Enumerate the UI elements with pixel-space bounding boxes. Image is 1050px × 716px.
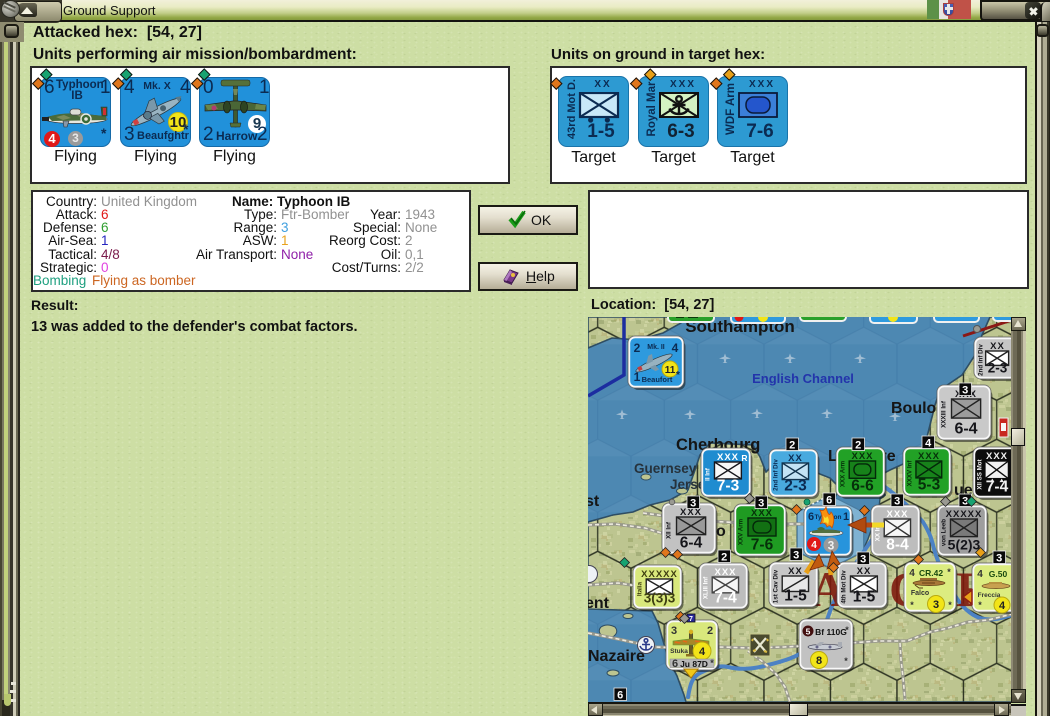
svg-text:6: 6	[672, 658, 678, 670]
svg-text:XII Inf: XII Inf	[666, 521, 673, 539]
svg-text:3: 3	[996, 552, 1002, 564]
svg-text:ent: ent	[588, 595, 610, 612]
svg-text:English Channel: English Channel	[752, 371, 854, 386]
svg-text:*: *	[947, 567, 951, 577]
svg-text:3: 3	[690, 497, 696, 509]
svg-text:4th Mot Div: 4th Mot Div	[841, 570, 848, 604]
svg-text:Ju 87D: Ju 87D	[680, 659, 708, 669]
svg-text:3: 3	[793, 549, 799, 561]
svg-text:XXXV Inf: XXXV Inf	[907, 460, 914, 487]
svg-text:3: 3	[671, 625, 677, 637]
svg-text:8: 8	[816, 655, 822, 667]
svg-text:1-5: 1-5	[853, 589, 876, 606]
svg-text:7-4: 7-4	[986, 479, 1009, 496]
svg-text:1-5: 1-5	[784, 588, 807, 605]
svg-text:4: 4	[699, 646, 706, 658]
svg-text:6: 6	[617, 689, 623, 701]
svg-text:2-3: 2-3	[784, 478, 807, 495]
svg-text:7: 7	[689, 616, 693, 623]
svg-text:Bf 110G: Bf 110G	[815, 627, 847, 637]
svg-text:1: 1	[843, 511, 849, 523]
svg-text:*: *	[978, 600, 982, 610]
svg-text:II Inf: II Inf	[705, 467, 712, 481]
svg-text:*: *	[710, 658, 714, 668]
svg-text:4: 4	[925, 437, 932, 449]
svg-text:7-6: 7-6	[751, 537, 774, 554]
svg-text:XXX Arm: XXX Arm	[840, 460, 847, 487]
svg-text:4: 4	[977, 569, 983, 580]
svg-text:6: 6	[808, 511, 814, 523]
svg-text:*: *	[676, 370, 680, 381]
svg-text:Italia: Italia	[637, 581, 644, 596]
svg-text:6: 6	[826, 494, 832, 506]
svg-text:2: 2	[721, 551, 727, 563]
svg-text:1: 1	[634, 370, 641, 384]
svg-text:*: *	[910, 600, 914, 610]
svg-text:4: 4	[909, 568, 915, 579]
svg-text:st: st	[588, 493, 600, 510]
svg-text:2: 2	[707, 625, 713, 637]
svg-text:5-3: 5-3	[918, 477, 941, 494]
svg-text:2nd Inf Div: 2nd Inf Div	[773, 459, 780, 491]
svg-text:CR.42: CR.42	[919, 568, 943, 578]
svg-text:2: 2	[855, 439, 861, 451]
svg-text:XLIII Inf: XLIII Inf	[703, 576, 710, 599]
svg-text:8-4: 8-4	[886, 537, 909, 554]
svg-text:2: 2	[789, 439, 795, 451]
svg-text:3: 3	[828, 539, 835, 553]
svg-text:Falco: Falco	[911, 590, 929, 597]
svg-text:Stuka: Stuka	[670, 648, 688, 655]
svg-text:*: *	[948, 600, 952, 610]
svg-text:3: 3	[894, 495, 900, 507]
svg-text:2nd Inf Div: 2nd Inf Div	[978, 344, 985, 376]
svg-text:von Leeb: von Leeb	[941, 519, 948, 546]
svg-text:4: 4	[672, 341, 679, 355]
svg-text:3: 3	[962, 384, 968, 396]
svg-text:5: 5	[806, 627, 811, 637]
svg-text:6-4: 6-4	[680, 535, 703, 552]
svg-text:Nazaire: Nazaire	[588, 648, 645, 665]
svg-text:3(3)3: 3(3)3	[644, 591, 676, 606]
svg-text:XII SS Mot: XII SS Mot	[977, 459, 984, 489]
svg-text:G.50: G.50	[989, 569, 1008, 579]
svg-text:XXXIII Inf: XXXIII Inf	[941, 400, 948, 428]
svg-text:4: 4	[811, 540, 817, 551]
svg-text:7-4: 7-4	[714, 590, 737, 607]
svg-text:2-3: 2-3	[988, 361, 1008, 376]
svg-text:3: 3	[758, 497, 764, 509]
svg-text:Mk. II: Mk. II	[647, 344, 665, 351]
svg-text:*: *	[844, 656, 848, 666]
svg-text:3: 3	[860, 553, 866, 565]
svg-text:7-3: 7-3	[717, 478, 740, 495]
svg-text:R: R	[741, 453, 747, 463]
svg-text:6-4: 6-4	[954, 421, 977, 438]
svg-text:*: *	[845, 625, 849, 635]
svg-text:3: 3	[933, 599, 939, 611]
svg-text:5(2)3: 5(2)3	[948, 537, 981, 553]
svg-text:4: 4	[999, 600, 1006, 612]
svg-text:Beaufort: Beaufort	[642, 375, 673, 384]
svg-text:Guernsey: Guernsey	[634, 461, 697, 476]
svg-text:6-6: 6-6	[851, 478, 874, 495]
svg-text:1st Cav Div: 1st Cav Div	[773, 569, 780, 603]
svg-text:2: 2	[634, 341, 641, 355]
svg-text:XXV Arm: XXV Arm	[738, 518, 745, 545]
